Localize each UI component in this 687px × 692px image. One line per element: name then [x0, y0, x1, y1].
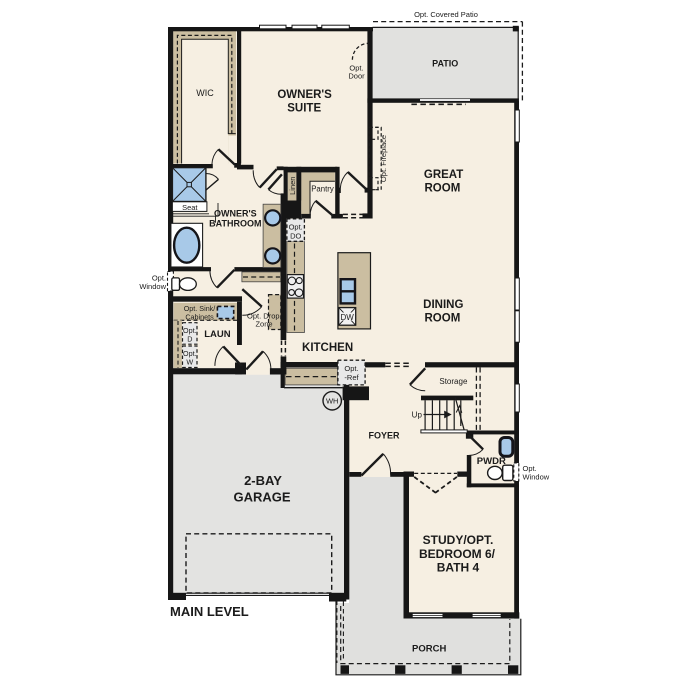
svg-text:DO: DO: [290, 232, 301, 241]
svg-text:Opt. Covered Patio: Opt. Covered Patio: [414, 10, 478, 19]
svg-text:PWDR: PWDR: [477, 456, 506, 467]
svg-text:D: D: [187, 334, 192, 343]
svg-text:Up: Up: [412, 410, 423, 419]
svg-text:PATIO: PATIO: [432, 58, 458, 68]
svg-text:Opt.: Opt.: [344, 364, 358, 373]
svg-text:Storage: Storage: [439, 377, 468, 386]
svg-text:Window: Window: [139, 282, 166, 291]
svg-text:2-BAY: 2-BAY: [244, 473, 282, 488]
svg-text:DW: DW: [341, 313, 355, 322]
svg-text:STUDY/OPT.: STUDY/OPT.: [423, 533, 494, 547]
svg-text:OWNER'S: OWNER'S: [214, 209, 257, 219]
svg-text:ROOM: ROOM: [425, 313, 461, 325]
svg-text:LAUN: LAUN: [204, 329, 231, 340]
svg-text:BEDROOM 6/: BEDROOM 6/: [419, 547, 496, 561]
svg-text:WH: WH: [326, 397, 339, 406]
svg-text:Opt.: Opt.: [289, 223, 303, 232]
svg-text:GREAT: GREAT: [424, 169, 463, 181]
svg-text:Seat: Seat: [182, 203, 198, 212]
svg-text:SUITE: SUITE: [287, 103, 321, 115]
svg-text:Window: Window: [523, 473, 550, 482]
svg-text:Zone: Zone: [255, 320, 272, 329]
svg-text:Linen: Linen: [288, 177, 297, 195]
svg-text:ROOM: ROOM: [425, 183, 461, 195]
svg-text:W: W: [186, 358, 193, 367]
svg-text:GARAGE: GARAGE: [233, 490, 290, 505]
svg-text:-Ref: -Ref: [344, 373, 359, 382]
svg-text:Opt. Fireplace: Opt. Fireplace: [379, 135, 388, 182]
svg-text:BATHROOM: BATHROOM: [209, 219, 261, 229]
svg-text:Cabinets: Cabinets: [185, 312, 214, 321]
svg-text:FOYER: FOYER: [368, 431, 400, 441]
svg-text:Pantry: Pantry: [311, 185, 334, 194]
svg-text:OWNER'S: OWNER'S: [277, 89, 332, 101]
svg-text:WIC: WIC: [196, 88, 214, 98]
svg-text:Door: Door: [348, 72, 365, 81]
svg-text:MAIN LEVEL: MAIN LEVEL: [170, 604, 249, 619]
svg-text:PORCH: PORCH: [412, 644, 446, 655]
svg-text:DINING: DINING: [423, 299, 463, 311]
svg-text:BATH 4: BATH 4: [437, 561, 480, 575]
svg-text:KITCHEN: KITCHEN: [302, 342, 353, 354]
